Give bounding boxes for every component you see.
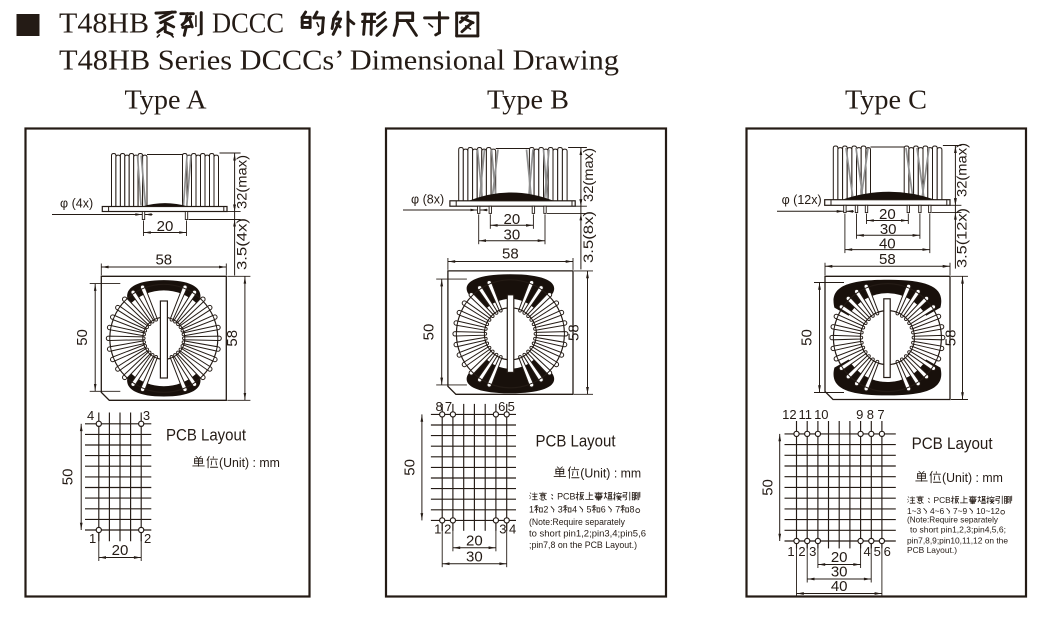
svg-text:3.5(8x): 3.5(8x) xyxy=(581,211,596,263)
svg-text:40: 40 xyxy=(879,236,896,253)
svg-text:1: 1 xyxy=(787,544,794,559)
svg-text:58: 58 xyxy=(502,246,519,263)
svg-text:58: 58 xyxy=(879,251,896,268)
svg-text:7: 7 xyxy=(877,407,884,422)
svg-text:5: 5 xyxy=(587,505,592,515)
svg-text:2: 2 xyxy=(543,505,548,515)
svg-text:20: 20 xyxy=(504,211,521,228)
svg-text:φ (4x): φ (4x) xyxy=(60,197,93,211)
svg-text:3: 3 xyxy=(809,544,816,559)
svg-text:Type B: Type B xyxy=(487,85,569,115)
svg-text:32(max): 32(max) xyxy=(235,155,250,209)
svg-text:6: 6 xyxy=(601,505,606,515)
svg-text:1: 1 xyxy=(89,531,96,546)
svg-text:30: 30 xyxy=(504,227,521,244)
svg-text:φ (8x): φ (8x) xyxy=(411,193,444,207)
svg-text:58: 58 xyxy=(224,330,241,347)
svg-text:7: 7 xyxy=(445,399,452,414)
svg-text:PCB Layout: PCB Layout xyxy=(166,426,246,445)
svg-text:4: 4 xyxy=(87,408,94,423)
svg-text:7: 7 xyxy=(615,505,620,515)
svg-text:3: 3 xyxy=(143,408,150,423)
svg-text:4: 4 xyxy=(863,544,870,559)
svg-text:8: 8 xyxy=(867,407,874,422)
svg-text:(Note:Require separately: (Note:Require separately xyxy=(529,517,625,527)
svg-text:50: 50 xyxy=(402,459,419,476)
svg-text:50: 50 xyxy=(421,324,438,341)
svg-text:PCB Layout: PCB Layout xyxy=(536,432,616,451)
svg-text:(Unit) : mm: (Unit) : mm xyxy=(942,470,1003,485)
svg-text:6: 6 xyxy=(498,399,505,414)
svg-text:50: 50 xyxy=(74,329,91,346)
svg-text:20: 20 xyxy=(157,218,174,235)
svg-text:2: 2 xyxy=(798,544,805,559)
svg-text:to short pin1,2;pin3,4;pin5,6: to short pin1,2;pin3,4;pin5,6 xyxy=(529,529,646,539)
svg-text:3.5(4x): 3.5(4x) xyxy=(235,218,250,270)
svg-text:T48HB Series DCCCs’ Dimensiona: T48HB Series DCCCs’ Dimensional Drawing xyxy=(59,46,619,77)
svg-text:20: 20 xyxy=(466,533,483,550)
svg-text:50: 50 xyxy=(799,329,816,346)
svg-text:10: 10 xyxy=(814,407,828,422)
svg-text:8: 8 xyxy=(435,399,442,414)
svg-text:to short pin1,2,3;pin4,5,6;: to short pin1,2,3;pin4,5,6; xyxy=(910,525,1006,535)
svg-text:;pin7,8 on the PCB Layout.): ;pin7,8 on the PCB Layout.) xyxy=(529,540,637,550)
svg-text:20: 20 xyxy=(112,542,129,559)
svg-text:5: 5 xyxy=(874,544,881,559)
svg-text:6: 6 xyxy=(884,544,891,559)
svg-text:Type A: Type A xyxy=(125,85,208,115)
svg-text:(Unit) : mm: (Unit) : mm xyxy=(219,455,280,470)
svg-text:φ (12x): φ (12x) xyxy=(782,193,822,207)
svg-text:(Unit) : mm: (Unit) : mm xyxy=(580,466,641,481)
svg-text:40: 40 xyxy=(831,578,848,595)
svg-text:12: 12 xyxy=(782,407,796,422)
svg-text:PCB: PCB xyxy=(557,492,575,502)
svg-text:3: 3 xyxy=(499,522,506,537)
svg-text:DCCC: DCCC xyxy=(212,9,284,40)
svg-text:2: 2 xyxy=(144,531,151,546)
svg-text:Type C: Type C xyxy=(845,85,927,115)
svg-text:(Note:Require separately: (Note:Require separately xyxy=(907,514,999,524)
svg-text:pin7,8,9;pin10,11,12 on the: pin7,8,9;pin10,11,12 on the xyxy=(907,536,1008,546)
svg-text:32(max): 32(max) xyxy=(581,148,596,202)
svg-text:2: 2 xyxy=(444,522,451,537)
svg-text:3: 3 xyxy=(558,505,563,515)
svg-text:5: 5 xyxy=(508,399,515,414)
svg-text:58: 58 xyxy=(566,324,583,341)
svg-text:50: 50 xyxy=(60,469,77,486)
svg-text:30: 30 xyxy=(466,549,483,566)
svg-text:32(max): 32(max) xyxy=(955,143,970,197)
svg-text:PCB Layout.): PCB Layout.) xyxy=(907,545,957,555)
svg-text:58: 58 xyxy=(943,330,960,347)
svg-text:4: 4 xyxy=(509,522,516,537)
svg-text:9: 9 xyxy=(856,407,863,422)
svg-text:11: 11 xyxy=(798,407,812,422)
svg-text:3.5(12x): 3.5(12x) xyxy=(955,208,970,268)
svg-text:1: 1 xyxy=(529,505,534,515)
svg-text:1: 1 xyxy=(434,522,441,537)
svg-text:PCB: PCB xyxy=(934,495,952,505)
svg-text:PCB Layout: PCB Layout xyxy=(912,434,993,453)
svg-text:50: 50 xyxy=(759,479,776,496)
svg-text:8: 8 xyxy=(630,505,635,515)
svg-text:58: 58 xyxy=(155,252,172,269)
svg-text:T48HB: T48HB xyxy=(59,9,149,40)
svg-text:4: 4 xyxy=(572,505,577,515)
